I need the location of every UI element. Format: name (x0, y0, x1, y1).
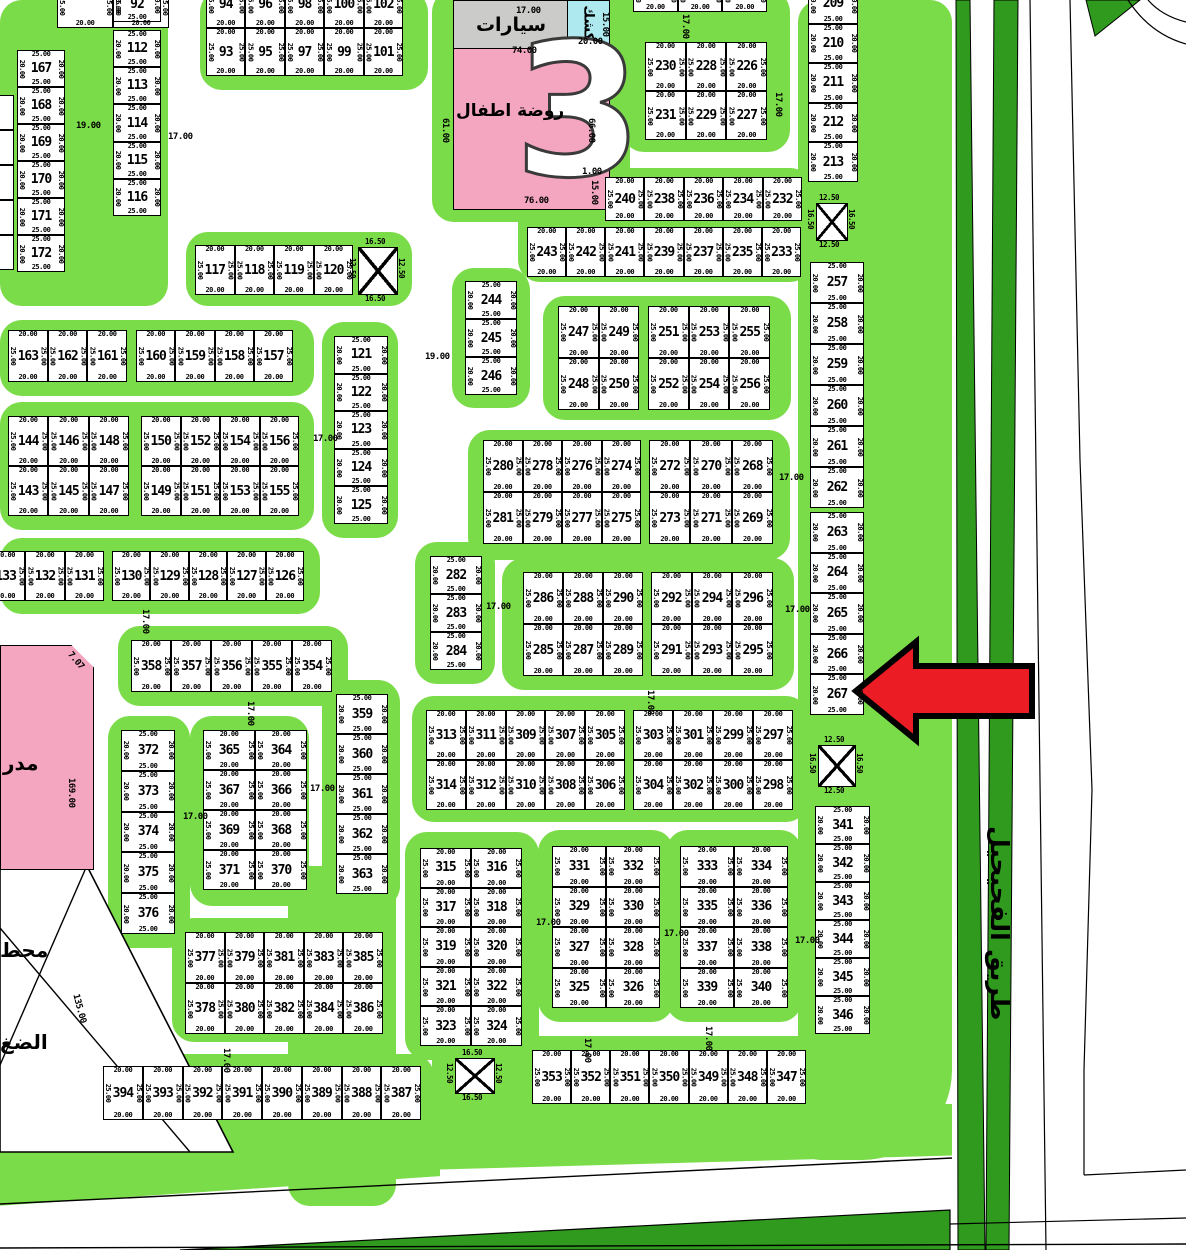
plot-number: 310 (515, 778, 535, 793)
plot-number: 392 (192, 1086, 212, 1101)
plot-number: 283 (446, 606, 466, 621)
plot-number: 151 (190, 484, 210, 499)
plot-number: 359 (352, 707, 372, 722)
plot-number: 98 (298, 0, 312, 12)
plot-number: 306 (595, 778, 615, 793)
plot-number: 226 (736, 59, 756, 74)
plot-number: 308 (555, 778, 575, 793)
plot-number: 170 (31, 172, 51, 187)
plot-number: 113 (127, 78, 147, 93)
plot-number: 162 (57, 349, 77, 364)
plot-number: 349 (698, 1070, 718, 1085)
plot-number: 274 (611, 459, 631, 474)
plot-number: 302 (683, 778, 703, 793)
plot-number: 130 (121, 569, 141, 584)
plot-number: 297 (763, 728, 783, 743)
plot-number: 363 (352, 867, 372, 882)
plot-number: 371 (219, 863, 239, 878)
plot-number: 169 (31, 135, 51, 150)
plot-number: 93 (219, 45, 233, 60)
plot-number: 336 (751, 899, 771, 914)
plot-number: 211 (823, 75, 843, 90)
plot-number: 160 (145, 349, 165, 364)
plot-number: 291 (661, 643, 681, 658)
block-b244-246: 24425.0025.0020.0020.0024525.0025.0020.0… (465, 281, 517, 395)
plot-number: 276 (572, 459, 592, 474)
plot-number: 114 (127, 116, 147, 131)
plot-number: 235 (732, 245, 752, 260)
plot-number: 284 (446, 644, 466, 659)
plot-number: 337 (697, 940, 717, 955)
plot-number: 149 (151, 484, 171, 499)
plot-number: 279 (532, 511, 552, 526)
plot-number: 340 (751, 980, 771, 995)
plot-number: 294 (702, 591, 722, 606)
plot-number: 328 (623, 940, 643, 955)
plot-number: 379 (234, 950, 254, 965)
plot-number: 148 (99, 434, 119, 449)
plot-number: 311 (475, 728, 495, 743)
plot-number: 352 (580, 1070, 600, 1085)
plot-number: 257 (827, 275, 847, 290)
subdivision-map: سيارات كشك 3 روضة اطفال مدر محط الضغ 20.… (0, 0, 1186, 1250)
plot-number: 288 (573, 591, 593, 606)
plot-number: 304 (643, 778, 663, 793)
plot-number: 253 (699, 325, 719, 340)
plot-number: 326 (623, 980, 643, 995)
plot-number: 231 (655, 108, 675, 123)
plot-number: 101 (373, 45, 393, 60)
plot-number: 299 (723, 728, 743, 743)
plot-number: 317 (435, 900, 455, 915)
plot-number: 320 (486, 939, 506, 954)
plot-number: 245 (481, 331, 501, 346)
plot-number: 163 (18, 349, 38, 364)
plot-number: 158 (224, 349, 244, 364)
plot-number: 124 (351, 460, 371, 475)
plot-number: 312 (475, 778, 495, 793)
plot-number: 377 (195, 950, 215, 965)
plot-number: 389 (311, 1086, 331, 1101)
plot-number: 366 (271, 783, 291, 798)
plot-number: 270 (701, 459, 721, 474)
plot-number: 335 (697, 899, 717, 914)
plot-number: 339 (697, 980, 717, 995)
plot-number: 143 (18, 484, 38, 499)
plot-number: 356 (221, 659, 241, 674)
plot-number: 129 (159, 569, 179, 584)
plot-number: 358 (141, 659, 161, 674)
plot-number: 324 (486, 1019, 506, 1034)
plot-number: 367 (219, 783, 239, 798)
plot-number: 338 (751, 940, 771, 955)
plot-number: 355 (261, 659, 281, 674)
plot-number: 391 (232, 1086, 252, 1101)
plot-number: 280 (493, 459, 513, 474)
plot-number: 213 (823, 155, 843, 170)
plot-number: 333 (697, 859, 717, 874)
plot-number: 239 (654, 245, 674, 260)
plot-number: 132 (35, 569, 55, 584)
plot-number: 254 (699, 377, 719, 392)
plot-number: 102 (373, 0, 393, 12)
plot-number: 127 (236, 569, 256, 584)
plot-number: 375 (138, 865, 158, 880)
plot-number: 372 (138, 743, 158, 758)
plot-number: 255 (739, 325, 759, 340)
plot-number: 325 (569, 980, 589, 995)
plot-number: 171 (31, 209, 51, 224)
plot-number: 353 (541, 1070, 561, 1085)
plot-number: 157 (263, 349, 283, 364)
plot-number: 298 (763, 778, 783, 793)
plot-number: 96 (258, 0, 272, 12)
plot-number: 265 (827, 606, 847, 621)
plot-number: 247 (568, 325, 588, 340)
plot-number: 293 (702, 643, 722, 658)
plot-number: 97 (298, 45, 312, 60)
plot-number: 275 (611, 511, 631, 526)
plot-number: 123 (351, 422, 371, 437)
plot-number: 233 (771, 245, 791, 260)
plot-number: 286 (533, 591, 553, 606)
plot-number: 232 (772, 192, 792, 207)
plot-number: 281 (493, 511, 513, 526)
plot-number: 344 (832, 932, 852, 947)
plot-number: 238 (654, 192, 674, 207)
plot-number: 287 (573, 643, 593, 658)
plot-number: 256 (739, 377, 759, 392)
plot-number: 118 (244, 263, 264, 278)
plot-number: 323 (435, 1019, 455, 1034)
plot-number: 374 (138, 824, 158, 839)
plot-number: 301 (683, 728, 703, 743)
plot-number: 99 (337, 45, 351, 60)
plot-number: 155 (269, 484, 289, 499)
pointer-arrow-shape (856, 642, 1032, 740)
plot-number: 345 (832, 970, 852, 985)
plot-number: 234 (733, 192, 753, 207)
plot-number: 386 (353, 1001, 373, 1016)
plot-number: 249 (609, 325, 629, 340)
plot-number: 309 (515, 728, 535, 743)
plot-number: 240 (614, 192, 634, 207)
plot-number: 116 (127, 190, 147, 205)
plot-number: 322 (486, 979, 506, 994)
plot-number: 307 (555, 728, 575, 743)
plot-number: 241 (615, 245, 635, 260)
plot-number: 388 (351, 1086, 371, 1101)
plot-number: 168 (31, 98, 51, 113)
plot-number: 334 (751, 859, 771, 874)
plot-number: 364 (271, 743, 291, 758)
plot-number: 121 (351, 347, 371, 362)
plot-number: 318 (486, 900, 506, 915)
plot-number: 228 (696, 59, 716, 74)
plot-number: 296 (742, 591, 762, 606)
plot-number: 147 (99, 484, 119, 499)
plot-number: 376 (138, 906, 158, 921)
plot-number: 387 (391, 1086, 411, 1101)
plot-number: 354 (302, 659, 322, 674)
plot-number: 262 (827, 480, 847, 495)
plot-number: 319 (435, 939, 455, 954)
block-b282-284: 28225.0025.0020.0020.0028325.0025.0020.0… (430, 556, 482, 670)
plot-number: 269 (742, 511, 762, 526)
plot-number: 350 (659, 1070, 679, 1085)
plot-number: 153 (230, 484, 250, 499)
plot-number: 347 (776, 1070, 796, 1085)
plot-number: 378 (195, 1001, 215, 1016)
plot-number: 385 (353, 950, 373, 965)
plot-number: 277 (572, 511, 592, 526)
plot-number: 290 (613, 591, 633, 606)
block-b161-163: 16320.0020.0025.0025.0016220.0020.0025.0… (8, 330, 127, 382)
plot-number: 268 (742, 459, 762, 474)
plot-number: 394 (113, 1086, 133, 1101)
plot-number: 380 (234, 1001, 254, 1016)
plot-number: 384 (313, 1001, 333, 1016)
plot-number: 272 (659, 459, 679, 474)
plot-number: 119 (284, 263, 304, 278)
plot-number: 362 (352, 827, 372, 842)
plot-number: 370 (271, 863, 291, 878)
plot-number: 329 (569, 899, 589, 914)
plot-number: 260 (827, 398, 847, 413)
plot-number: 95 (258, 45, 272, 60)
plot-number: 351 (620, 1070, 640, 1085)
plot-number: 152 (190, 434, 210, 449)
plot-number: 313 (436, 728, 456, 743)
plot-number: 267 (827, 687, 847, 702)
plot-number: 212 (823, 115, 843, 130)
plot-number: 251 (658, 325, 678, 340)
plot-number: 278 (532, 459, 552, 474)
plot-number: 331 (569, 859, 589, 874)
plot-number: 133 (0, 569, 16, 584)
plot-number: 348 (737, 1070, 757, 1085)
plot-number: 161 (97, 349, 117, 364)
plot-number: 369 (219, 823, 239, 838)
plot-number: 263 (827, 525, 847, 540)
plot-number: 327 (569, 940, 589, 955)
plot-number: 271 (701, 511, 721, 526)
plot-number: 145 (58, 484, 78, 499)
plot-number: 365 (219, 743, 239, 758)
plot-number: 236 (693, 192, 713, 207)
plot-number: 252 (658, 377, 678, 392)
plot-number: 159 (185, 349, 205, 364)
block-b126-130: 13020.0020.0025.0025.0012920.0020.0025.0… (112, 551, 304, 601)
plot-number: 92 (130, 0, 144, 12)
plot-number: 285 (533, 643, 553, 658)
plot-number: 94 (219, 0, 233, 12)
plot-number: 303 (643, 728, 663, 743)
plot-number: 258 (827, 316, 847, 331)
plot-number: 292 (661, 591, 681, 606)
plot-number: 393 (152, 1086, 172, 1101)
plot-number: 243 (536, 245, 556, 260)
plot-number: 248 (568, 377, 588, 392)
plot-number: 146 (58, 434, 78, 449)
plot-number: 332 (623, 859, 643, 874)
plot-number: 131 (74, 569, 94, 584)
plot-number: 346 (832, 1008, 852, 1023)
plot-number: 373 (138, 784, 158, 799)
plot-number: 368 (271, 823, 291, 838)
plot-number: 300 (723, 778, 743, 793)
plot-number: 244 (481, 293, 501, 308)
plot-number: 128 (198, 569, 218, 584)
plot-number: 315 (435, 860, 455, 875)
plot-number: 210 (823, 36, 843, 51)
plot-number: 150 (151, 434, 171, 449)
plot-number: 330 (623, 899, 643, 914)
pointer-arrow (0, 0, 1186, 1250)
plot-number: 154 (230, 434, 250, 449)
plot-number: 316 (486, 860, 506, 875)
plot-number: 289 (613, 643, 633, 658)
plot-number: 264 (827, 565, 847, 580)
plot-number: 100 (334, 0, 354, 12)
plot-number: 172 (31, 246, 51, 261)
plot-number: 382 (274, 1001, 294, 1016)
plot-number: 125 (351, 498, 371, 513)
plot-number: 112 (127, 41, 147, 56)
plot-number: 261 (827, 439, 847, 454)
plot-number: 242 (575, 245, 595, 260)
plot-number: 120 (323, 263, 343, 278)
plot-number: 209 (823, 0, 843, 11)
plot-number: 381 (274, 950, 294, 965)
plot-number: 343 (832, 894, 852, 909)
plot-number: 230 (655, 59, 675, 74)
plot-number: 117 (205, 263, 225, 278)
plot-number: 126 (275, 569, 295, 584)
plot-number: 390 (272, 1086, 292, 1101)
plot-number: 321 (435, 979, 455, 994)
plot-number: 246 (481, 369, 501, 384)
plot-number: 259 (827, 357, 847, 372)
plot-number: 314 (436, 778, 456, 793)
plot-number: 361 (352, 787, 372, 802)
plot-number: 341 (832, 818, 852, 833)
plot-number: 250 (609, 377, 629, 392)
plot-number: 237 (693, 245, 713, 260)
plot-number: 305 (595, 728, 615, 743)
plot-number: 357 (181, 659, 201, 674)
plot-number: 342 (832, 856, 852, 871)
plot-number: 282 (446, 568, 466, 583)
plot-number: 383 (313, 950, 333, 965)
plot-number: 115 (127, 153, 147, 168)
plot-number: 144 (18, 434, 38, 449)
plot-number: 360 (352, 747, 372, 762)
plot-number: 167 (31, 61, 51, 76)
plot-number: 227 (736, 108, 756, 123)
plot-number: 266 (827, 647, 847, 662)
plot-number: 295 (742, 643, 762, 658)
plot-number: 156 (269, 434, 289, 449)
plot-number: 229 (696, 108, 716, 123)
plot-number: 273 (659, 511, 679, 526)
plot-number: 122 (351, 385, 371, 400)
